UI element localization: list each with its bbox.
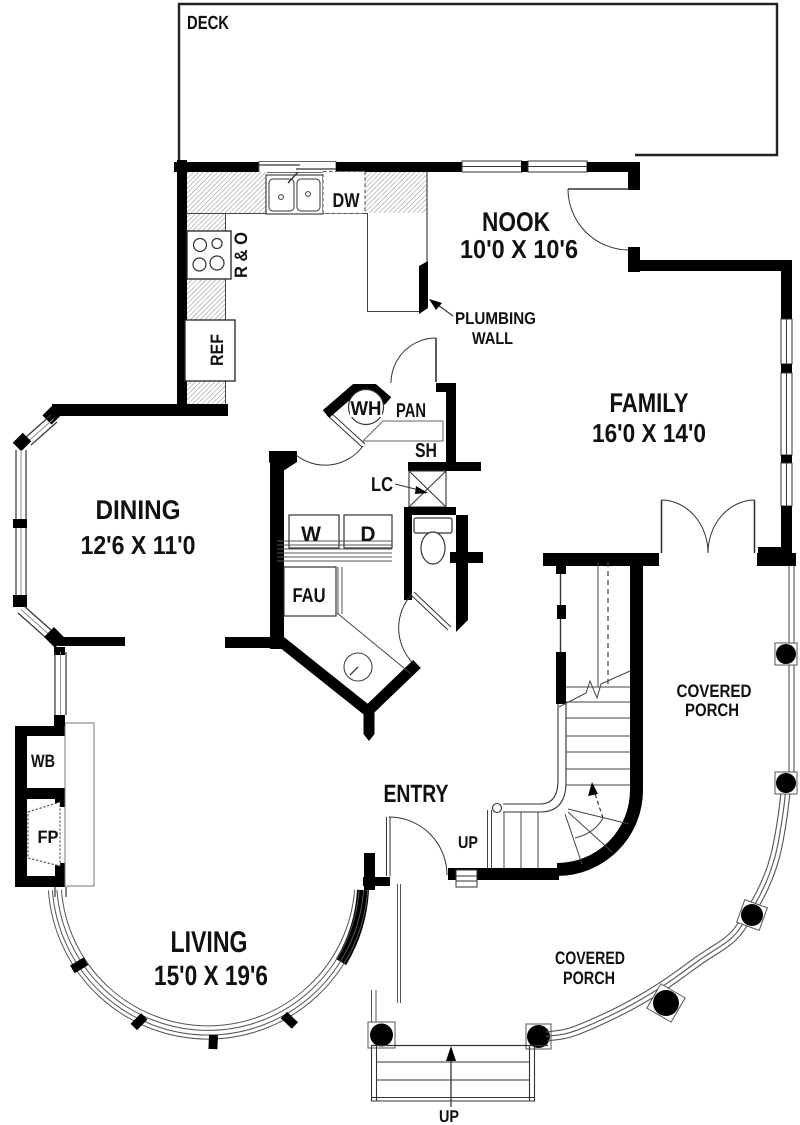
svg-text:R & O: R & O [231, 232, 251, 278]
svg-text:WH: WH [351, 398, 382, 420]
svg-text:LIVING: LIVING [171, 926, 248, 959]
svg-text:REF: REF [207, 334, 227, 366]
svg-text:COVERED: COVERED [677, 681, 752, 701]
svg-text:FAU: FAU [293, 585, 326, 607]
svg-text:NOOK: NOOK [482, 207, 550, 237]
svg-text:SH: SH [415, 440, 437, 462]
svg-text:DECK: DECK [187, 13, 229, 34]
svg-text:UP: UP [458, 833, 478, 852]
svg-text:PORCH: PORCH [685, 700, 739, 720]
svg-text:12'6 X 11'0: 12'6 X 11'0 [81, 530, 196, 560]
svg-text:10'0 X 10'6: 10'0 X 10'6 [460, 234, 578, 264]
svg-text:FP: FP [38, 827, 59, 847]
svg-text:16'0 X 14'0: 16'0 X 14'0 [592, 418, 706, 448]
svg-text:WB: WB [31, 751, 55, 771]
svg-text:15'0 X 19'6: 15'0 X 19'6 [154, 960, 268, 991]
svg-text:W: W [301, 523, 321, 546]
svg-text:LC: LC [371, 474, 393, 496]
svg-text:PAN: PAN [396, 400, 426, 422]
svg-text:FAMILY: FAMILY [610, 388, 689, 418]
svg-text:UP: UP [439, 1107, 459, 1125]
svg-text:PLUMBING: PLUMBING [455, 309, 536, 328]
svg-text:DW: DW [333, 190, 360, 212]
svg-text:COVERED: COVERED [555, 948, 625, 968]
svg-text:WALL: WALL [472, 329, 513, 348]
svg-text:DINING: DINING [96, 495, 181, 525]
svg-text:PORCH: PORCH [563, 968, 615, 988]
svg-text:ENTRY: ENTRY [384, 780, 449, 808]
svg-text:D: D [360, 523, 375, 546]
